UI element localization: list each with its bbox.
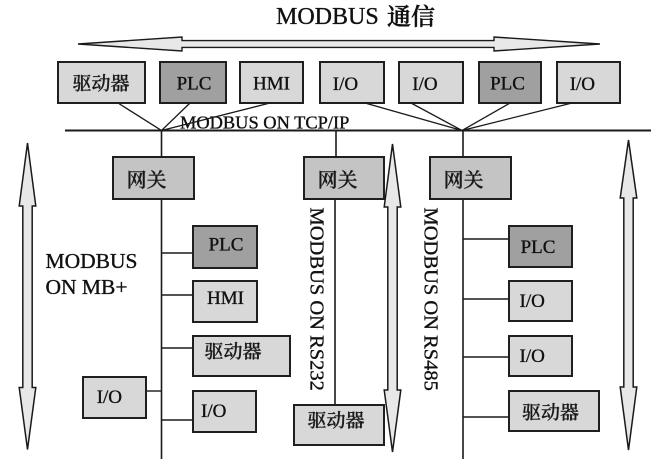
svg-text:I/O: I/O: [412, 74, 437, 95]
svg-text:I/O: I/O: [520, 291, 545, 312]
svg-text:I/O: I/O: [520, 346, 545, 367]
svg-text:PLC: PLC: [209, 235, 244, 256]
svg-text:MODBUS: MODBUS: [46, 249, 138, 273]
svg-text:I/O: I/O: [97, 387, 122, 408]
svg-text:I/O: I/O: [333, 74, 358, 95]
svg-text:MODBUS ON RS485: MODBUS ON RS485: [420, 208, 442, 391]
svg-text:I/O: I/O: [570, 74, 595, 95]
svg-text:PLC: PLC: [521, 237, 556, 258]
svg-text:ON MB+: ON MB+: [46, 275, 128, 299]
svg-text:HMI: HMI: [207, 288, 244, 309]
svg-text:PLC: PLC: [177, 74, 212, 95]
svg-text:PLC: PLC: [490, 74, 525, 95]
svg-text:HMI: HMI: [253, 74, 290, 95]
svg-text:MODBUS ON RS232: MODBUS ON RS232: [306, 208, 328, 391]
svg-text:MODBUS: MODBUS: [276, 4, 379, 30]
svg-text:I/O: I/O: [201, 401, 226, 422]
svg-text:MODBUS ON TCP/IP: MODBUS ON TCP/IP: [180, 113, 349, 133]
